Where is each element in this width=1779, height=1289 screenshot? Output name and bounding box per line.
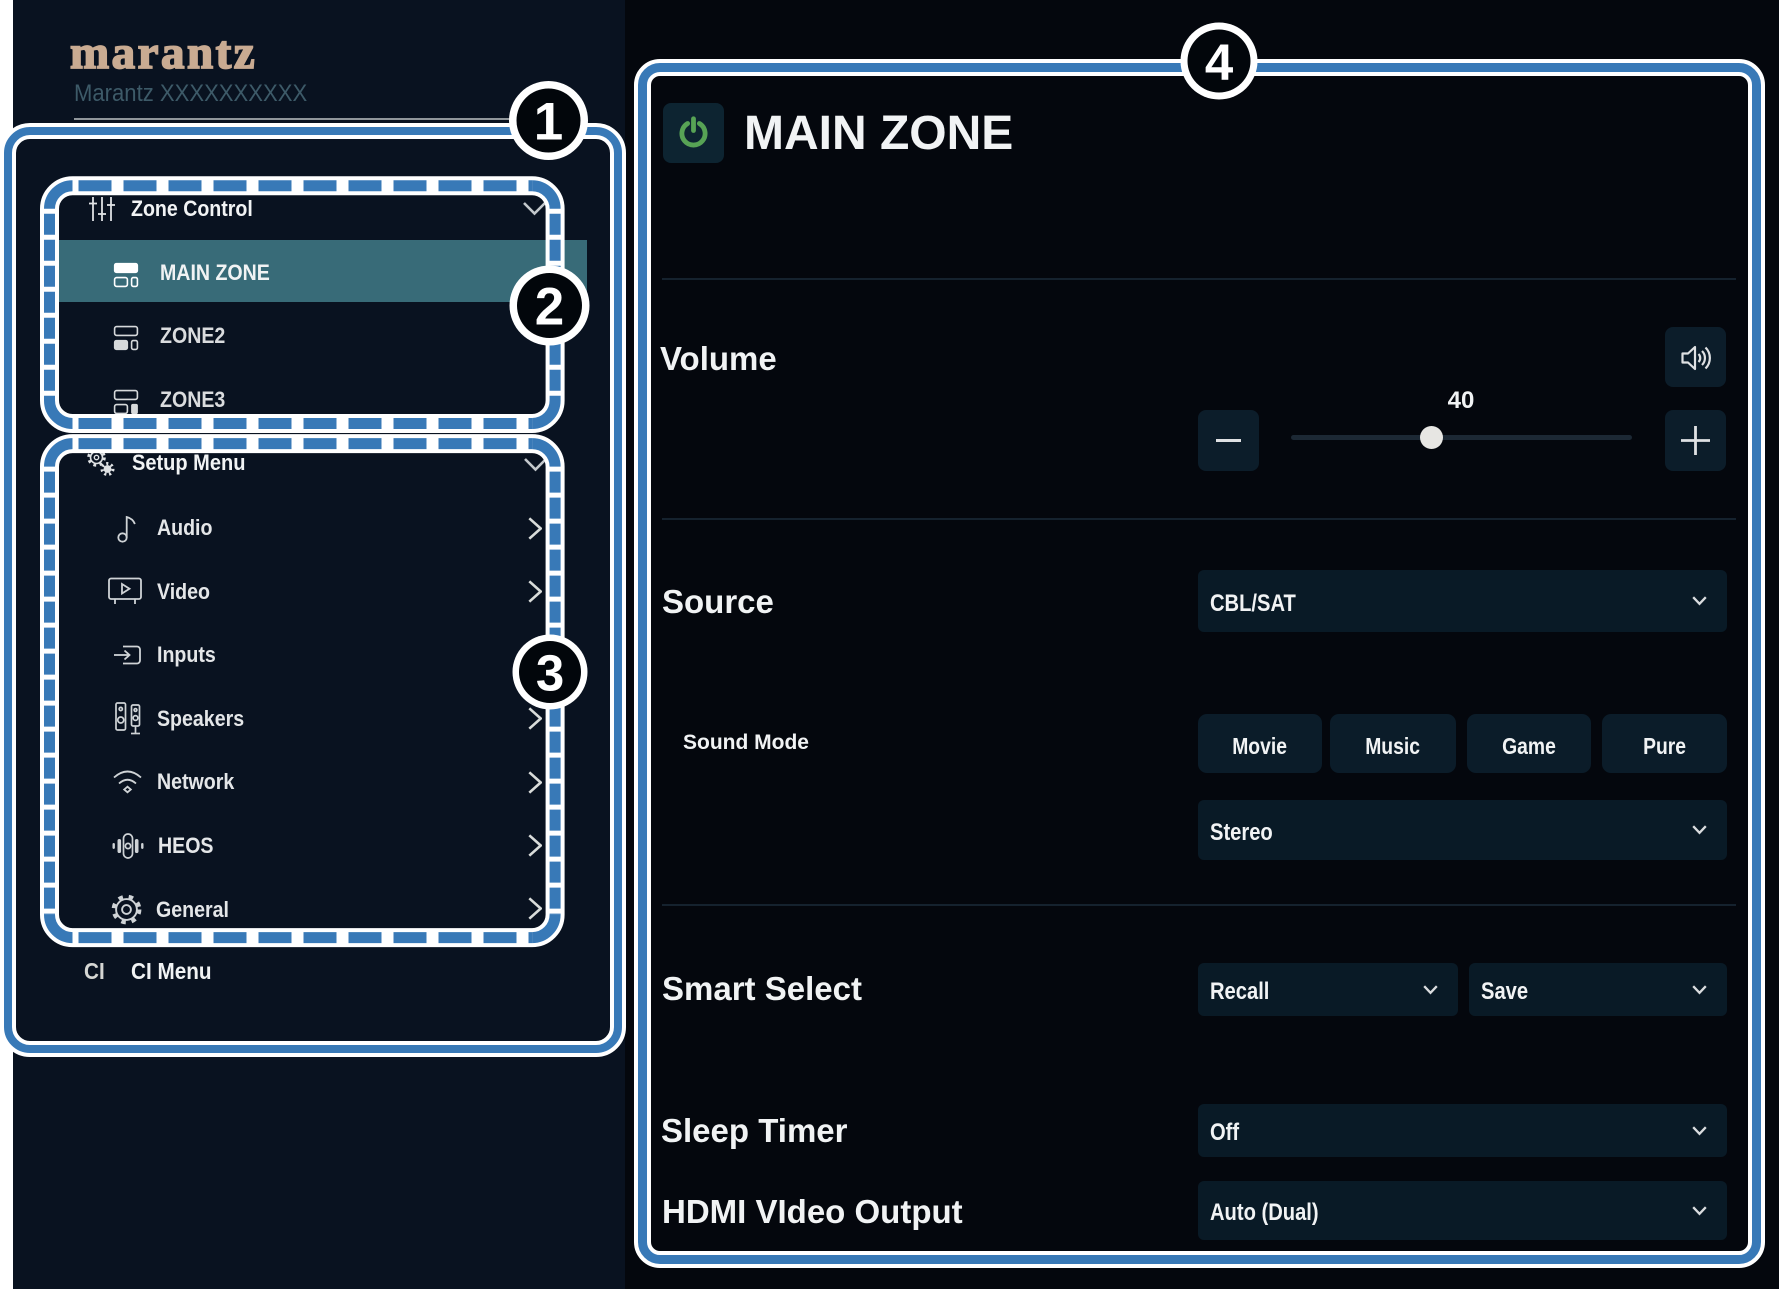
svg-text:4: 4	[1205, 34, 1234, 91]
svg-text:1: 1	[534, 93, 563, 152]
svg-text:3: 3	[536, 645, 564, 702]
svg-text:2: 2	[535, 278, 564, 337]
